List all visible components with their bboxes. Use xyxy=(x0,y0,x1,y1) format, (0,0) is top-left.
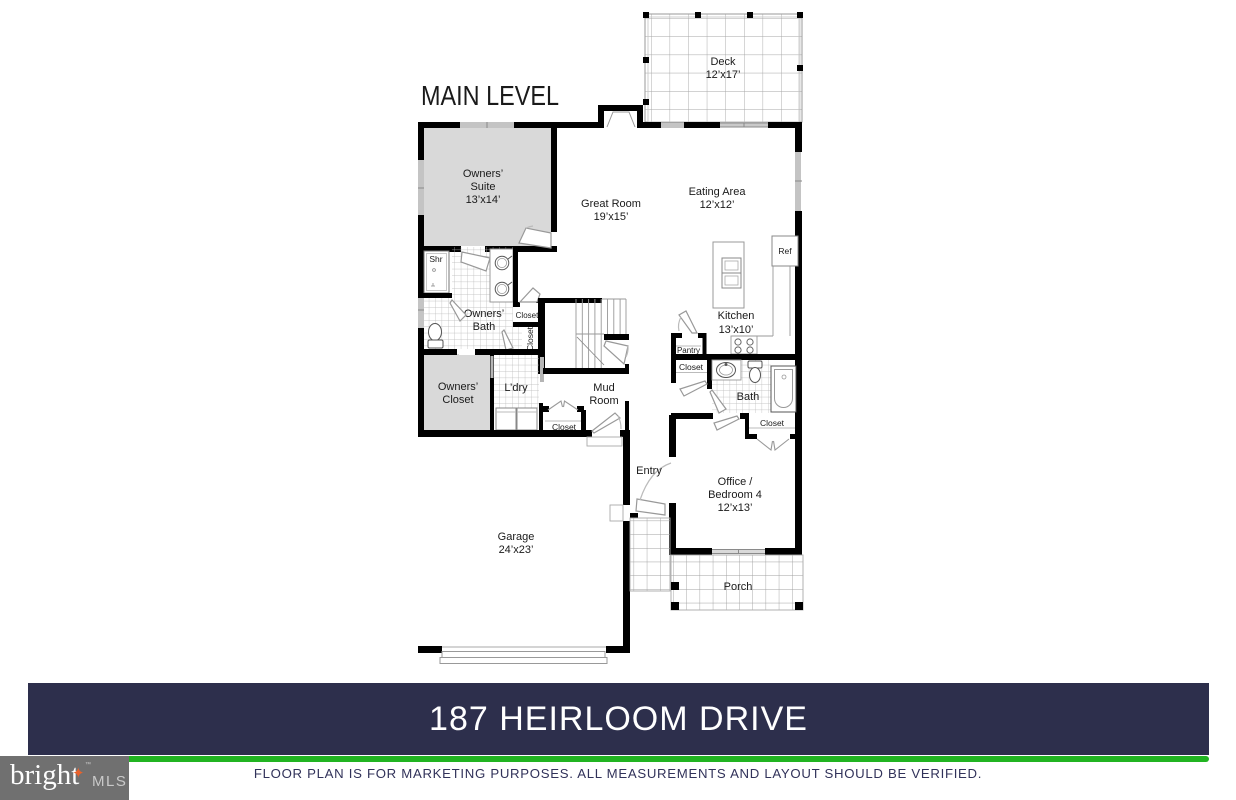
svg-text:12’x17’: 12’x17’ xyxy=(706,69,741,81)
svg-text:Porch: Porch xyxy=(724,581,753,593)
svg-text:L’dry: L’dry xyxy=(504,382,528,394)
svg-text:Owners’: Owners’ xyxy=(438,381,478,393)
svg-text:Closet: Closet xyxy=(679,362,704,372)
svg-text:Deck: Deck xyxy=(710,56,736,68)
svg-text:13’x14’: 13’x14’ xyxy=(466,194,501,206)
svg-text:Garage: Garage xyxy=(498,531,535,543)
svg-text:Closet: Closet xyxy=(442,394,473,406)
svg-text:Bath: Bath xyxy=(737,391,760,403)
svg-text:Owners’: Owners’ xyxy=(463,168,503,180)
svg-text:19’x15’: 19’x15’ xyxy=(594,211,629,223)
svg-text:24’x23’: 24’x23’ xyxy=(499,544,534,556)
svg-text:Shr: Shr xyxy=(429,254,442,264)
svg-text:Great Room: Great Room xyxy=(581,198,641,210)
svg-text:Suite: Suite xyxy=(470,181,495,193)
svg-text:Owners’: Owners’ xyxy=(464,308,504,320)
svg-text:Kitchen: Kitchen xyxy=(718,310,755,322)
svg-text:Closet: Closet xyxy=(760,418,785,428)
svg-text:Bedroom 4: Bedroom 4 xyxy=(708,489,762,501)
svg-text:Bath: Bath xyxy=(473,321,496,333)
svg-text:MAIN LEVEL: MAIN LEVEL xyxy=(421,80,559,111)
svg-text:Entry: Entry xyxy=(636,465,662,477)
svg-text:Mud: Mud xyxy=(593,382,614,394)
svg-text:12’x13’: 12’x13’ xyxy=(718,502,753,514)
svg-text:13’x10’: 13’x10’ xyxy=(719,324,754,336)
svg-text:Room: Room xyxy=(589,395,618,407)
svg-text:12’x12’: 12’x12’ xyxy=(700,199,735,211)
svg-text:Ref: Ref xyxy=(778,246,792,256)
svg-text:Closet: Closet xyxy=(525,326,535,351)
svg-text:Office /: Office / xyxy=(718,476,754,488)
svg-text:Closet: Closet xyxy=(516,311,539,320)
svg-text:Eating Area: Eating Area xyxy=(689,186,747,198)
svg-text:Pantry: Pantry xyxy=(677,346,700,355)
